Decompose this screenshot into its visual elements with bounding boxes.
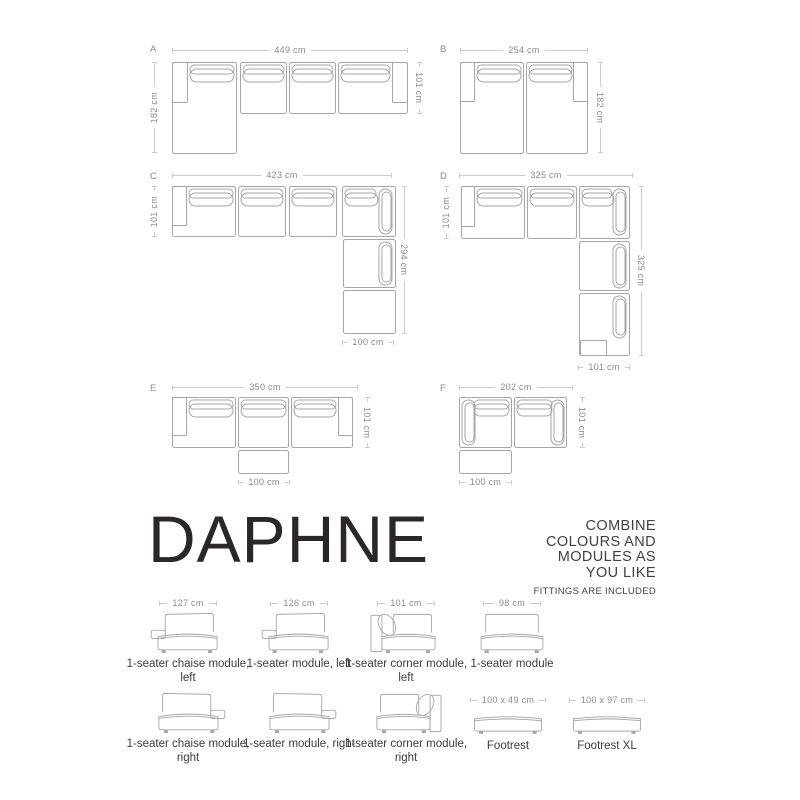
- config-b-label: B: [440, 44, 447, 55]
- config-e-right-dimension: 101 cm: [362, 397, 372, 448]
- dim-value: 101 cm: [414, 67, 424, 108]
- dim-tick: [152, 236, 157, 237]
- module-dimension: 98 cm: [483, 598, 541, 608]
- module-label: Footrest: [487, 740, 529, 754]
- dim-value: 101 cm: [149, 191, 159, 232]
- config-d-topview-drawing: [459, 186, 630, 356]
- dim-value: 101 cm: [577, 402, 587, 443]
- module-drawing-chaise-right: [148, 691, 228, 735]
- dim-value: 100 x 49 cm: [477, 695, 539, 705]
- module-label: 1-seater module: [470, 658, 553, 672]
- dim-value: 101 cm: [441, 192, 451, 233]
- tagline-line: MODULES AS: [400, 550, 656, 566]
- module-label: Footrest XL: [577, 740, 636, 754]
- module-dimension: 126 cm: [270, 598, 328, 608]
- config-c-label: C: [150, 171, 157, 182]
- config-d-top-dimension: 325 cm: [459, 170, 633, 180]
- dim-value: 202 cm: [495, 382, 536, 392]
- dim-line: [600, 63, 601, 87]
- dim-tick: [152, 152, 157, 153]
- dim-tick: [511, 480, 512, 485]
- tagline-line: YOU LIKE: [400, 566, 656, 582]
- dim-line: [154, 63, 155, 87]
- module-drawing-chaise-left: [148, 611, 228, 655]
- config-d-right-dimension: 325 cm: [636, 186, 646, 356]
- config-b-topview-drawing: [460, 62, 588, 154]
- dim-value: 126 cm: [278, 598, 319, 608]
- module-dimension: 100 x 49 cm: [470, 695, 546, 705]
- dim-value: 101 cm: [362, 402, 372, 443]
- dim-tick: [587, 48, 588, 53]
- dim-line: [271, 603, 278, 604]
- module-dimension: 100 x 97 cm: [569, 695, 645, 705]
- dim-line: [600, 128, 601, 152]
- dim-value: 325 cm: [636, 250, 646, 291]
- module-label: 1-seater module, left: [247, 658, 352, 672]
- config-a-topview-drawing: [172, 62, 408, 154]
- dim-line: [427, 603, 434, 604]
- config-f-topview-drawing: [459, 397, 569, 474]
- dim-tick: [629, 365, 630, 370]
- dim-line: [460, 175, 525, 176]
- dim-tick: [402, 333, 407, 334]
- dim-value: 254 cm: [503, 45, 544, 55]
- dim-line: [460, 387, 495, 388]
- module-drawing-corner-right: [366, 691, 446, 735]
- config-d-bottom-dimension: 101 cm: [578, 362, 630, 372]
- dim-tick: [216, 601, 217, 606]
- spec-sheet-page: A 449 cm 182 cm 101 cm B 254 cm: [0, 0, 800, 800]
- dim-tick: [417, 113, 422, 114]
- dim-value: 101 cm: [385, 598, 426, 608]
- dim-line: [173, 50, 269, 51]
- config-e-bottom-dimension: 100 cm: [238, 477, 290, 487]
- dim-value: 98 cm: [494, 598, 530, 608]
- config-b-top-dimension: 254 cm: [460, 45, 588, 55]
- config-e-topview-drawing: [172, 397, 358, 474]
- dim-line: [286, 387, 357, 388]
- module-label: 1-seater chaise module, right: [124, 738, 252, 765]
- dim-line: [641, 292, 642, 355]
- module-item-module: 98 cm 1-seater module: [447, 598, 577, 672]
- dim-line: [567, 175, 632, 176]
- config-f-right-dimension: 101 cm: [577, 397, 587, 448]
- dim-line: [320, 603, 327, 604]
- dim-tick: [327, 601, 328, 606]
- config-d-label: D: [440, 171, 447, 182]
- tagline-line: COLOURS AND: [400, 535, 656, 551]
- dim-line: [484, 603, 494, 604]
- dim-line: [173, 387, 244, 388]
- tagline-block: COMBINE COLOURS AND MODULES AS YOU LIKE …: [400, 519, 656, 597]
- dim-line: [154, 128, 155, 152]
- module-drawing-footrest: [468, 708, 548, 737]
- config-c-right-dimension: 294 cm: [399, 186, 409, 334]
- dim-line: [173, 175, 261, 176]
- dim-line: [209, 603, 216, 604]
- dim-value: 325 cm: [525, 170, 566, 180]
- config-f-top-dimension: 202 cm: [459, 382, 573, 392]
- module-label: 1-seater chaise module, left: [124, 658, 252, 685]
- module-drawing-footrest-xl: [567, 708, 647, 737]
- dim-value: 182 cm: [149, 87, 159, 128]
- dim-tick: [632, 173, 633, 178]
- dim-tick: [644, 698, 645, 703]
- config-a-left-dimension: 182 cm: [149, 62, 159, 153]
- dim-value: 449 cm: [269, 45, 310, 55]
- dim-line: [545, 50, 587, 51]
- tagline-line: COMBINE: [400, 519, 656, 535]
- dim-line: [537, 387, 572, 388]
- dim-tick: [444, 238, 449, 239]
- dim-line: [311, 50, 407, 51]
- dim-tick: [391, 173, 392, 178]
- dim-value: 101 cm: [583, 362, 624, 372]
- config-b-right-dimension: 182 cm: [595, 62, 605, 153]
- dim-tick: [598, 152, 603, 153]
- module-label: 1-seater module, right: [243, 738, 355, 752]
- config-c-left-dimension: 101 cm: [149, 186, 159, 237]
- dim-tick: [407, 48, 408, 53]
- dim-value: 182 cm: [595, 87, 605, 128]
- dim-value: 100 cm: [465, 477, 506, 487]
- dim-value: 423 cm: [261, 170, 302, 180]
- config-c-bottom-dimension: 100 cm: [342, 337, 394, 347]
- dim-value: 127 cm: [167, 598, 208, 608]
- dim-line: [641, 187, 642, 250]
- config-c-top-dimension: 423 cm: [172, 170, 392, 180]
- config-e-label: E: [150, 383, 157, 394]
- dim-tick: [393, 340, 394, 345]
- dim-value: 350 cm: [244, 382, 285, 392]
- module-dimension: 127 cm: [159, 598, 217, 608]
- tagline-note: FITTINGS ARE INCLUDED: [400, 586, 656, 597]
- config-a-right-dimension: 101 cm: [414, 62, 424, 114]
- dim-tick: [580, 447, 585, 448]
- dim-value: 100 cm: [243, 477, 284, 487]
- dim-line: [303, 175, 391, 176]
- dim-tick: [357, 385, 358, 390]
- dim-tick: [434, 601, 435, 606]
- dim-value: 294 cm: [399, 239, 409, 280]
- config-c-topview-drawing: [172, 186, 396, 334]
- dim-line: [160, 603, 167, 604]
- dim-tick: [540, 601, 541, 606]
- dim-line: [530, 603, 540, 604]
- config-f-bottom-dimension: 100 cm: [459, 477, 512, 487]
- dim-tick: [639, 355, 644, 356]
- module-drawing-corner-left: [366, 611, 446, 655]
- module-drawing-module-right: [259, 691, 339, 735]
- dim-value: 100 x 97 cm: [576, 695, 638, 705]
- dim-line: [404, 187, 405, 239]
- dim-line: [461, 50, 503, 51]
- config-a-label: A: [150, 44, 157, 55]
- dim-value: 100 cm: [347, 337, 388, 347]
- dim-tick: [572, 385, 573, 390]
- dim-tick: [365, 447, 370, 448]
- dim-tick: [289, 480, 290, 485]
- config-d-left-dimension: 101 cm: [441, 186, 451, 239]
- module-dimension: 101 cm: [377, 598, 435, 608]
- config-a-top-dimension: 449 cm: [172, 45, 408, 55]
- config-f-label: F: [440, 383, 446, 394]
- page-title: DAPHNE: [148, 506, 429, 572]
- module-drawing-module-left: [259, 611, 339, 655]
- config-e-top-dimension: 350 cm: [172, 382, 358, 392]
- dim-line: [404, 281, 405, 333]
- module-drawing-module: [472, 611, 552, 655]
- dim-line: [378, 603, 385, 604]
- module-item-footrest-xl: 100 x 97 cm Footrest XL: [540, 695, 674, 754]
